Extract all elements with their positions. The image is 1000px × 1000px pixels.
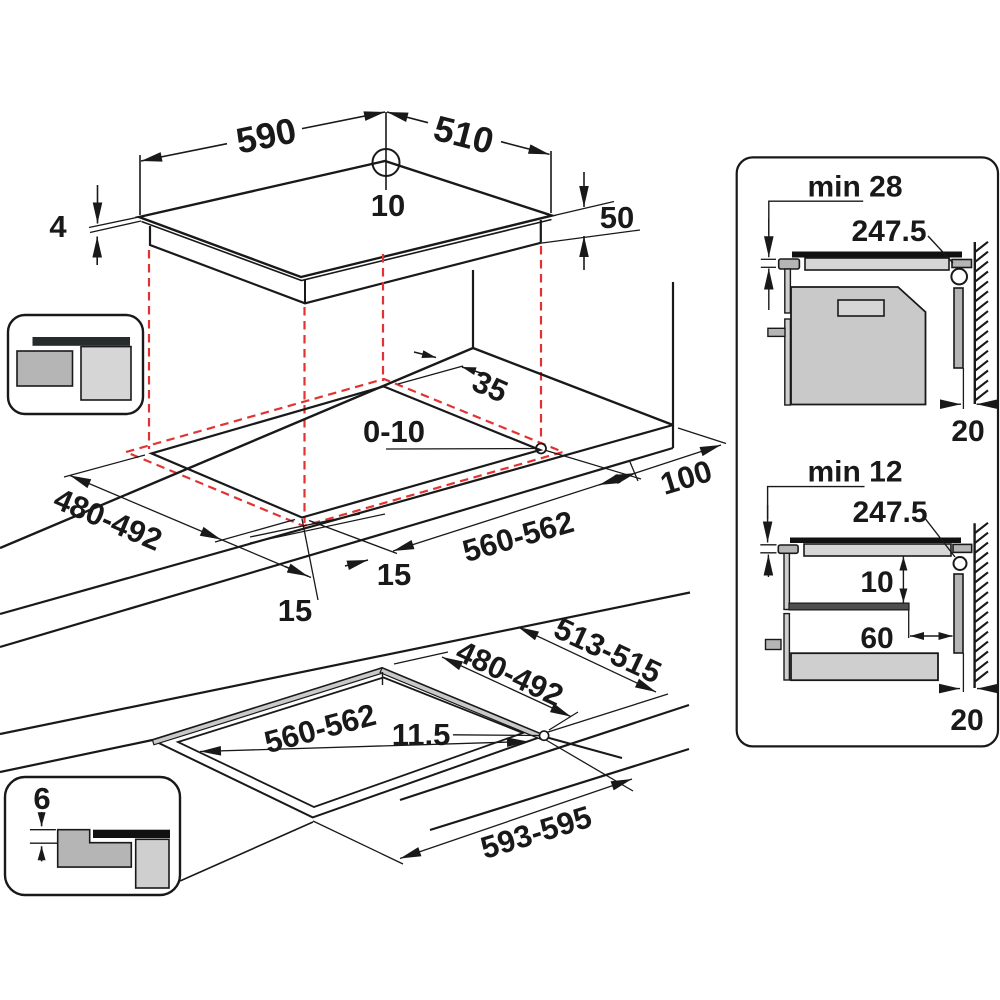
svg-text:10: 10 [371, 188, 405, 223]
svg-text:6: 6 [33, 781, 50, 816]
svg-text:15: 15 [377, 557, 411, 592]
svg-text:513-515: 513-515 [549, 611, 667, 691]
svg-text:min 12: min 12 [807, 456, 902, 489]
svg-text:100: 100 [656, 453, 716, 502]
svg-text:50: 50 [600, 200, 634, 235]
svg-text:0-10: 0-10 [363, 414, 425, 449]
svg-text:510: 510 [430, 107, 498, 162]
svg-text:480-492: 480-492 [49, 481, 167, 558]
svg-text:20: 20 [951, 415, 984, 448]
svg-text:560-562: 560-562 [459, 504, 578, 569]
svg-text:min 28: min 28 [807, 171, 902, 204]
svg-text:15: 15 [278, 593, 312, 628]
svg-text:11.5: 11.5 [392, 717, 451, 752]
svg-text:60: 60 [860, 622, 893, 655]
svg-text:4: 4 [49, 209, 67, 244]
svg-text:590: 590 [233, 109, 300, 161]
svg-text:247.5: 247.5 [851, 215, 926, 248]
svg-text:20: 20 [950, 704, 983, 737]
svg-text:247.5: 247.5 [852, 496, 927, 529]
svg-text:10: 10 [860, 566, 893, 599]
svg-text:480-492: 480-492 [451, 634, 569, 714]
